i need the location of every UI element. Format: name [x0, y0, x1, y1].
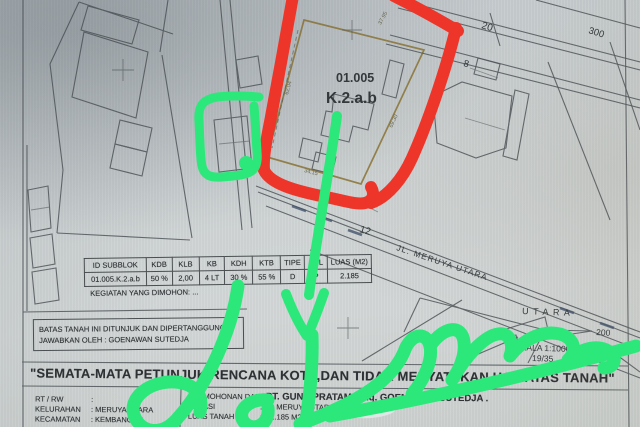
- green-marker-dot: [239, 156, 253, 170]
- marker-annotations: [0, 0, 640, 427]
- green-handwriting: [133, 286, 636, 427]
- green-arrow-annotation: [286, 116, 337, 336]
- red-marker-outline: [264, 0, 458, 204]
- scanned-city-plan-document: 01.005 K.2.a.b JL. MERUYA UTARA 20 300 8…: [0, 0, 640, 427]
